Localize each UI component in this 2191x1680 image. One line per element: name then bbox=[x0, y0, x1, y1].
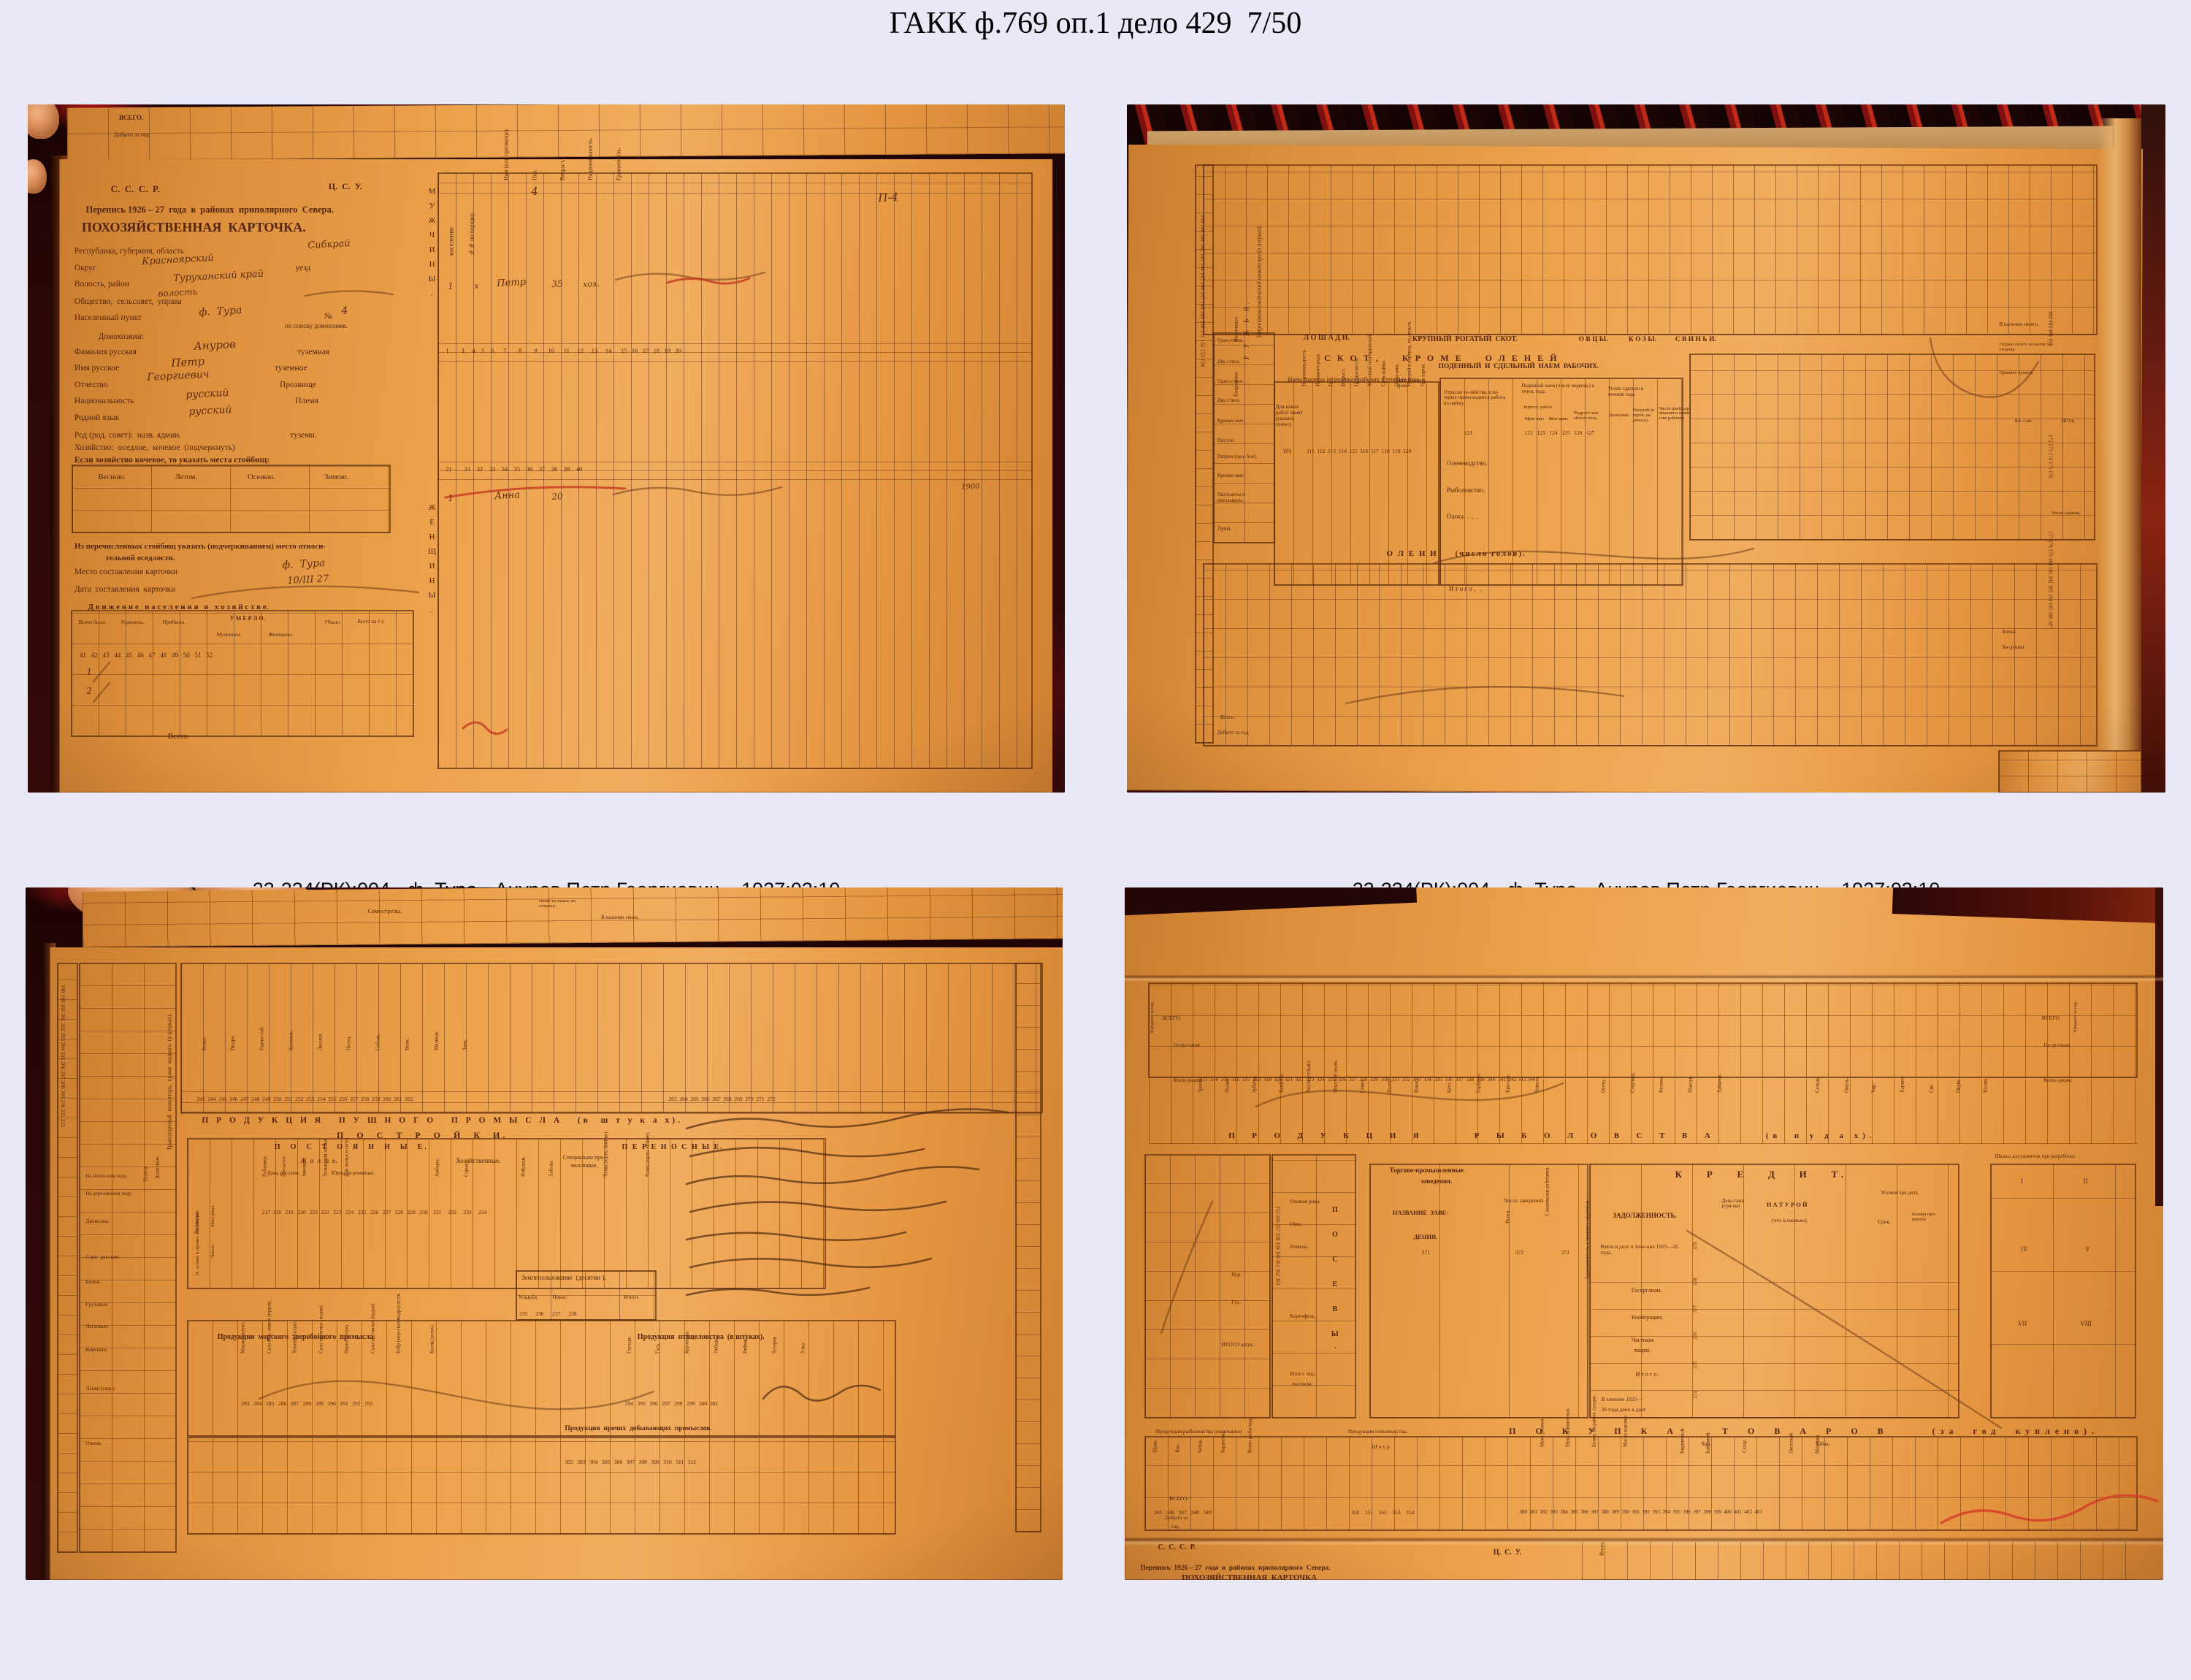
document-text: Р У Ж Ь Я. bbox=[1243, 299, 1250, 359]
document-text: Утка. bbox=[801, 1342, 806, 1353]
page-title: ГАКК ф.769 оп.1 дело 429 7/50 bbox=[0, 4, 2191, 42]
document-text: V bbox=[2085, 1246, 2090, 1253]
document-text: Тюлень (штук). bbox=[293, 1321, 298, 1353]
document-text: Картофель. bbox=[1290, 1313, 1316, 1319]
document-text: Н А Т У Р О Й bbox=[1767, 1202, 1808, 1208]
document-text: 10/III 27 bbox=[287, 574, 329, 587]
document-text: 139 140 141 142 143 144 145 146 147 148 … bbox=[1200, 215, 1206, 367]
document-text: год. bbox=[1171, 1524, 1179, 1530]
document-text: по списку домохозяев. bbox=[285, 323, 348, 330]
archive-contact-sheet: ГАКК ф.769 оп.1 дело 429 7/50 ВСЕГО.Добы… bbox=[0, 0, 2191, 1680]
document-text: 21 31 32 33 34 35 36 37 38 39 40 bbox=[446, 466, 582, 473]
document-text: Кооперации. bbox=[1632, 1315, 1663, 1321]
document-text: Акула (сельдь). bbox=[1307, 1060, 1312, 1093]
document-text: Георгиевич bbox=[147, 370, 210, 384]
document-text: Всего. bbox=[1220, 714, 1235, 720]
document-text: О В Ц Ы. bbox=[1579, 336, 1608, 343]
document-text: 373 bbox=[1561, 1250, 1569, 1256]
document-text: Тетерев. bbox=[772, 1336, 777, 1353]
document-text: Всего на 1 г. bbox=[358, 619, 399, 625]
document-text: Бобр (мор-ская выдра) штук. bbox=[397, 1292, 402, 1353]
document-text: Итого под bbox=[1290, 1371, 1315, 1377]
document-text: Сало мор. живое (пудов). bbox=[267, 1300, 272, 1353]
document-text: Телеги. bbox=[143, 1166, 149, 1182]
document-text: Рябчик. bbox=[743, 1337, 748, 1353]
document-text: Налим. bbox=[1225, 1077, 1231, 1093]
document-text: 177 178 179 180 181 182 183 184 185 186 … bbox=[2047, 531, 2053, 628]
document-text: Красноярский bbox=[142, 253, 214, 267]
document-text: Чир. bbox=[1871, 1083, 1876, 1092]
document-text: 372 bbox=[1515, 1250, 1523, 1256]
document-text: Сани русские. bbox=[85, 1254, 120, 1260]
document-text: туземная bbox=[297, 348, 329, 356]
document-text: Весною. bbox=[99, 473, 126, 481]
document-text: Куропатка. bbox=[685, 1330, 690, 1353]
document-text: Пистолеты и револьверы. bbox=[1217, 492, 1269, 503]
document-text: Легковые. bbox=[85, 1324, 109, 1329]
document-text: Национальность bbox=[74, 397, 134, 405]
document-text: Грамотность. bbox=[1354, 358, 1360, 387]
document-text: х bbox=[474, 282, 479, 291]
document-text: Л О Ш А Д И. bbox=[1304, 335, 1350, 343]
document-text: Керешки. bbox=[85, 1347, 107, 1353]
document-text: П Р О Д У К Ц И Я П У Ш Н О Г О П Р О М … bbox=[202, 1116, 683, 1125]
document-text: Чебак. bbox=[1198, 1439, 1204, 1453]
caption-photo-014: 23-234(РК):004 - ф. Тура - Ануров Петр Г… bbox=[26, 1622, 1063, 1680]
document-text: НАЗВАНИЕ ЗАВЕ- bbox=[1393, 1210, 1448, 1216]
document-text: На дере-вянном ходу. bbox=[85, 1191, 135, 1197]
document-text: 172 173 174 175 176 bbox=[2047, 435, 2053, 478]
document-text: Национальность. bbox=[588, 137, 594, 180]
document-text: своих на выпас на сторону. bbox=[539, 898, 591, 909]
document-text: Досчатые. bbox=[282, 1156, 287, 1177]
document-text: 243 244 245 246 247 248 249 250 251 252 … bbox=[196, 1096, 413, 1102]
document-text: Чумы (юрты зимние). bbox=[604, 1131, 609, 1177]
document-text: Из какого рода. bbox=[1315, 354, 1321, 387]
document-text: Моржи (штук). bbox=[241, 1321, 246, 1353]
document-text: ф. Тура bbox=[199, 305, 242, 318]
document-text: 379 bbox=[1694, 1242, 1699, 1250]
document-text: Род (род. совет): назв. админ. bbox=[74, 431, 181, 440]
document-text: Избушки. bbox=[521, 1156, 527, 1177]
document-text: 122 123 124 125 126 127 bbox=[1525, 430, 1595, 436]
document-text: Грузовые. bbox=[85, 1302, 109, 1307]
document-text: Рыболовство. bbox=[1447, 487, 1485, 495]
document-text: Рубленые. bbox=[263, 1156, 268, 1177]
document-text: ф. Тура bbox=[282, 558, 326, 571]
document-text: Всего было. bbox=[79, 619, 116, 625]
document-text: Жен-щин. bbox=[1548, 416, 1569, 421]
document-text: Перепись 1926 – 27 года в районах припол… bbox=[86, 205, 334, 215]
document-text: Сало тю-ленье (пудов). bbox=[319, 1305, 324, 1353]
document-text: Для каких работ нанят (указать точно). bbox=[1275, 404, 1309, 427]
document-text: Баранатка. bbox=[1221, 1430, 1226, 1453]
document-text: Мука пшенич-ная. bbox=[1566, 1408, 1571, 1447]
document-text: Отчество bbox=[74, 381, 108, 389]
document-text: Патронные. bbox=[1234, 371, 1239, 397]
document-text: 377 bbox=[1694, 1305, 1699, 1313]
document-text: 355 356 357 358 359 360 361 362 363 bbox=[1274, 1206, 1280, 1286]
document-text: Звероловно-охотничий инвентарь (в штуках… bbox=[1257, 225, 1263, 338]
document-text: Овес. bbox=[1290, 1221, 1303, 1227]
document-text: Взято в долг в тече-ние 1925—26 года. bbox=[1600, 1244, 1678, 1256]
document-text: Деньгами. bbox=[1609, 413, 1630, 418]
document-text: Махорка. bbox=[1815, 1435, 1820, 1454]
document-text-layer: ВСЕГО.Добыто за год.С. С. С. Р.Ц. С. У.П… bbox=[28, 104, 1065, 793]
document-text: Продукция прочих добывающих промыслов. bbox=[565, 1425, 711, 1432]
document-text: Для жилья и скота. bbox=[345, 1137, 350, 1177]
document-text: Самострелы. bbox=[368, 908, 402, 915]
document-text: С В И Н Ь И. bbox=[1675, 336, 1716, 343]
document-text: Налим. bbox=[1984, 1077, 1989, 1093]
document-text: 41 42 43 44 45 46 47 48 49 50 51 52 bbox=[80, 652, 213, 660]
document-text: I bbox=[2021, 1178, 2023, 1185]
document-text: П О К У П К А Т О В А Р О В (за год купл… bbox=[1509, 1427, 2099, 1436]
document-text: Всего. bbox=[168, 733, 190, 741]
document-text: 294 295 296 297 298 299 300 301 bbox=[625, 1401, 719, 1407]
document-text: Госорганам. bbox=[1632, 1288, 1662, 1294]
document-text: Колесные. bbox=[155, 1156, 161, 1178]
document-text: Оленеводство. bbox=[1447, 460, 1488, 467]
document-text: Шкалы для разметок при разработке. bbox=[1995, 1154, 2130, 1160]
document-text: Байховый. bbox=[1706, 1432, 1711, 1454]
document-text: Итого рыбы пуд. bbox=[1248, 1417, 1253, 1452]
document-text: Балки. bbox=[85, 1279, 101, 1285]
document-text: 4 bbox=[531, 186, 538, 198]
document-text: Родилось. bbox=[121, 619, 156, 625]
document-text: 263 264 265 266 267 268 269 270 271 272 bbox=[668, 1096, 775, 1102]
photo-gakk-769-1-429-013: ВСЕГО.Добыто за год.С. С. С. Р.Ц. С. У.П… bbox=[28, 104, 1065, 793]
document-text: Кремне-вые. bbox=[1217, 473, 1259, 479]
document-text: Хозяйство: оседлое, кочевое (подчеркнуть… bbox=[74, 443, 235, 452]
document-text: Специально про- bbox=[563, 1155, 605, 1161]
document-text: Нерпа (штук). bbox=[345, 1324, 350, 1353]
document-text-layer: Самострелы.своих на выпас на сторону.В н… bbox=[26, 887, 1063, 1580]
document-text: Число заведений. bbox=[1504, 1198, 1545, 1204]
document-text: Гус. bbox=[1231, 1299, 1241, 1305]
document-text: ДЕНИЯ. bbox=[1413, 1234, 1437, 1240]
document-text: Лабазы. bbox=[549, 1160, 554, 1177]
document-text: № bbox=[324, 312, 332, 321]
document-text: уезд bbox=[295, 264, 310, 272]
document-text: Котик (штук). bbox=[430, 1324, 435, 1353]
photo-gakk-769-1-429-013v: 139 140 141 142 143 144 145 146 147 148 … bbox=[1127, 104, 2165, 793]
document-text: Амбары. bbox=[435, 1158, 440, 1177]
document-text: 20 bbox=[551, 492, 563, 502]
document-text: Дву-ствол. bbox=[1217, 398, 1259, 404]
document-text: Красная. bbox=[1506, 1074, 1511, 1092]
document-text: Ц. С. У. bbox=[1494, 1549, 1521, 1557]
document-text: Харьюс. bbox=[1900, 1074, 1905, 1092]
document-text: Убыло. bbox=[324, 619, 341, 625]
document-text: население bbox=[448, 227, 455, 256]
document-text: Число дней хар-чевания в хозяй-стве рабо… bbox=[1659, 407, 1694, 421]
document-text: Ц. С. У. bbox=[329, 182, 362, 191]
document-text: Зимовья. bbox=[302, 1158, 307, 1177]
document-text: IV bbox=[2021, 1246, 2028, 1253]
document-text: Добыто за bbox=[1165, 1516, 1188, 1521]
document-text: Мука ржаная. bbox=[1540, 1418, 1545, 1447]
photo-gakk-769-1-429-014: Самострелы.своих на выпас на сторону.В н… bbox=[26, 887, 1063, 1580]
document-text: В течение 1925— bbox=[1602, 1397, 1643, 1402]
document-text: МУЖЧИНЫ. bbox=[427, 187, 436, 304]
document-text: Пол. bbox=[532, 169, 538, 180]
document-text: Продукция рыболовства (окончание) bbox=[1156, 1429, 1242, 1435]
document-text: Имя русское bbox=[74, 364, 119, 373]
document-text: Гусь. bbox=[656, 1343, 661, 1353]
document-text: С наемными рабочими. bbox=[1545, 1167, 1550, 1216]
document-text: 26 года дано в долг bbox=[1602, 1407, 1646, 1413]
document-text: 217 218 219 220 221 222 223 224 225 226 … bbox=[262, 1210, 487, 1215]
document-text: Усадьба bbox=[519, 1294, 538, 1300]
document-text: У М Е Р Л О. bbox=[230, 616, 265, 622]
document-text-layer: 139 140 141 142 143 144 145 146 147 148 … bbox=[1127, 104, 2165, 793]
document-text: Пистонные. bbox=[1234, 316, 1239, 342]
document-text: Из перечисленных стойбищ указать (подчер… bbox=[74, 543, 326, 551]
document-text: П О С Т Р О Й К И. bbox=[337, 1131, 508, 1140]
document-text: 1 bbox=[448, 494, 454, 503]
document-text: Стерлядь. bbox=[1630, 1072, 1635, 1093]
document-text: Н. летних и прочих стойбищах. bbox=[195, 1212, 200, 1275]
document-text: Покос. bbox=[552, 1294, 568, 1300]
document-text: Принято чужого. bbox=[1999, 370, 2051, 375]
document-text: Нельма. bbox=[1659, 1075, 1664, 1092]
document-text: №№ по порядку. bbox=[470, 213, 476, 256]
document-text: VII bbox=[2018, 1321, 2027, 1328]
document-text: Населенный пункт bbox=[74, 313, 142, 322]
document-text: Зубатка. bbox=[1253, 1075, 1258, 1093]
document-text: русский bbox=[188, 404, 232, 417]
document-text: Зимою. bbox=[324, 473, 348, 481]
document-text: Округ bbox=[74, 264, 96, 272]
document-text: Язь. bbox=[1175, 1444, 1180, 1453]
document-text: Общество, сельсовет, управа bbox=[74, 297, 182, 306]
document-text: Плата за весь срок. bbox=[1397, 378, 1434, 389]
document-text-layer: ВСЕГО.Госор-ганам.Коопе-рации.Продано за… bbox=[1125, 887, 2163, 1580]
document-text: Кремне-вые. bbox=[1217, 419, 1259, 424]
document-text: ВСЕГО. bbox=[119, 115, 143, 122]
document-text: 371 bbox=[1422, 1250, 1430, 1256]
document-text: Итого. bbox=[624, 1294, 639, 1300]
document-text: Племя bbox=[295, 397, 318, 405]
document-text: 1 3 4 5 6 7 8 9 10 11 12 13 14 15 16 17 … bbox=[446, 348, 681, 354]
document-text: К Р Е Д И Т. bbox=[1675, 1169, 1848, 1180]
document-text: ВСЕГО bbox=[2042, 1015, 2060, 1021]
document-text: Таймень. bbox=[1718, 1073, 1723, 1092]
document-text: Транспортный инвентарь, кроме водного (в… bbox=[167, 1013, 173, 1150]
document-text: Белка. bbox=[202, 1036, 207, 1050]
document-text: Торгово-промышленные bbox=[1390, 1167, 1464, 1175]
document-text: Сараи. bbox=[464, 1163, 469, 1177]
document-text: Лыжи (пар.). bbox=[85, 1386, 115, 1391]
caption-photo-014v: 23-234(РК):004 - ф. Тура - Ануров Петр Г… bbox=[1125, 1622, 2163, 1680]
document-text: Прибыло. bbox=[163, 619, 198, 625]
document-text: Продано за год. bbox=[1150, 1001, 1155, 1033]
document-text: 283 284 285 286 287 288 289 290 291 292 … bbox=[241, 1401, 372, 1407]
document-text: ВСЕГО. bbox=[1162, 1015, 1181, 1021]
document-text: Д в и ж е н и е н а с е л е н и я в х о … bbox=[88, 603, 268, 612]
document-text: Осетр. bbox=[1601, 1078, 1606, 1092]
document-text: Госор-ганам. bbox=[1174, 1043, 1207, 1048]
document-text: ЖЕНЩИНЫ. bbox=[427, 503, 436, 620]
document-text: Прозвище bbox=[280, 381, 316, 389]
document-text: Летом. bbox=[175, 473, 197, 481]
document-text: туземн. bbox=[290, 431, 317, 440]
document-text: Сахар. bbox=[1743, 1439, 1748, 1453]
document-text: Камбала. bbox=[1280, 1073, 1285, 1092]
document-text: 1 bbox=[448, 282, 454, 291]
document-text: Кирпичный. bbox=[1680, 1428, 1686, 1454]
document-text: мысловые. bbox=[571, 1163, 598, 1169]
document-text: Чавыча. bbox=[1534, 1075, 1540, 1092]
document-text: Ка-душки bbox=[2003, 645, 2034, 651]
document-text: Грамотность. bbox=[616, 147, 622, 180]
document-text: Треска. bbox=[1198, 1077, 1204, 1092]
document-text: Хозяйственные. bbox=[456, 1158, 500, 1165]
document-text: Возраст. bbox=[559, 159, 566, 180]
document-text: Добыто за год. bbox=[1217, 730, 1269, 736]
document-text: Максун. bbox=[1689, 1075, 1694, 1093]
document-text: Муж-чин. bbox=[1525, 416, 1545, 421]
document-text: Имя (или прозвище). bbox=[504, 128, 511, 180]
document-text: Соболь. bbox=[376, 1033, 382, 1050]
document-text: 162 163 164 165 bbox=[2047, 311, 2053, 345]
document-text: Семга. bbox=[1361, 1078, 1366, 1092]
document-text: Местный или пришлый. bbox=[1367, 334, 1373, 386]
document-text: Подрост-ков обоего пола. bbox=[1573, 411, 1605, 421]
document-text: Сиг. bbox=[1930, 1084, 1935, 1093]
document-text: Задолженность к моменту переписи. bbox=[1586, 1199, 1591, 1278]
document-text: Перепись 1926 – 27 года в районах припол… bbox=[1140, 1565, 1330, 1572]
document-text: хоз. bbox=[583, 280, 600, 289]
document-text: Анна bbox=[494, 491, 520, 503]
document-text: ПОХОЗЯЙСТВЕННАЯ КАРТОЧКА. bbox=[82, 221, 306, 234]
document-text: Возраст. bbox=[1342, 368, 1347, 386]
document-text: Итого. bbox=[1600, 1541, 1606, 1555]
document-text: Луки. bbox=[1217, 526, 1231, 532]
document-text: Озимая рожь bbox=[1290, 1199, 1320, 1204]
document-text: Морской окунь. bbox=[1334, 1059, 1339, 1093]
document-text: 235 236 237 238 bbox=[519, 1311, 577, 1317]
document-text: ИТОГО штук. bbox=[1221, 1342, 1254, 1348]
document-text: Мужчины. bbox=[216, 632, 241, 638]
document-text: Срок найма. bbox=[1381, 360, 1387, 387]
document-text: День-гами (сум-ма) bbox=[1722, 1199, 1751, 1210]
document-text: Сельдь. bbox=[1815, 1076, 1820, 1092]
document-text: Омуль. bbox=[1844, 1077, 1849, 1093]
document-text: Окунь. bbox=[1957, 1078, 1962, 1093]
photo-gakk-769-1-429-014v: ВСЕГО.Госор-ганам.Коопе-рации.Продано за… bbox=[1125, 887, 2163, 1580]
document-text: Взросл. рабоч. bbox=[1523, 405, 1553, 410]
document-text: С. С. С. Р. bbox=[1158, 1544, 1196, 1552]
document-text: Пол. bbox=[1329, 377, 1335, 387]
document-text: Продукция оленеводства. bbox=[1348, 1429, 1407, 1435]
document-text: Мате-риал. bbox=[210, 1204, 215, 1227]
document-text: О Л Е Н И (число голов). bbox=[1387, 550, 1526, 559]
document-text: Медведь. bbox=[434, 1030, 440, 1050]
document-text: Всего. bbox=[1505, 1210, 1511, 1223]
document-text: Натурой в перевод. на деньги. bbox=[1407, 321, 1413, 387]
document-text: Родной язык bbox=[74, 413, 119, 422]
document-text: 350 351 352 353 354 bbox=[1351, 1510, 1414, 1516]
document-text: Патрон (цен. бое). bbox=[1217, 454, 1264, 460]
document-text: Бочки bbox=[2003, 630, 2016, 635]
document-text: Масло коровье. bbox=[1623, 1414, 1628, 1447]
document-text: К О З Ы. bbox=[1629, 336, 1656, 343]
document-text: тельной оседлости. bbox=[106, 554, 175, 563]
document-text: Женщины. bbox=[268, 632, 293, 638]
document-text: Продано за год. bbox=[2073, 1001, 2078, 1033]
document-text: Срок. bbox=[1878, 1219, 1891, 1225]
document-text: 121 bbox=[1464, 430, 1472, 436]
document-text: 2 bbox=[86, 687, 92, 696]
document-text: Домохозяин: bbox=[99, 332, 145, 341]
document-text: Сало нер-пичье (пудов). bbox=[371, 1302, 376, 1353]
document-text: волость bbox=[158, 288, 197, 299]
document-text: Коопе-рации. bbox=[2043, 1078, 2077, 1083]
document-text: Лисица. bbox=[318, 1033, 324, 1050]
document-text: Ш к у р. bbox=[1372, 1444, 1391, 1450]
document-text: И т о г о . bbox=[1636, 1372, 1660, 1378]
document-text: Место составления карточки bbox=[74, 568, 177, 576]
document-text: 1900 bbox=[961, 484, 980, 492]
document-text: Горностай. bbox=[259, 1026, 265, 1050]
document-text: П Р О Д У К Ц И Я Р Ы Б О Л О В С Т В А … bbox=[1228, 1132, 1875, 1141]
document-text: Ячмень. bbox=[1290, 1244, 1309, 1250]
document-text: туземное bbox=[275, 364, 307, 373]
document-text: Число. bbox=[210, 1244, 215, 1258]
document-text: Госор-ганам. bbox=[2043, 1043, 2077, 1048]
document-text: Частным bbox=[1632, 1337, 1654, 1344]
caption-line1: 23-234(РК):004 - ф. Тура - Ануров Петр Г… bbox=[26, 1676, 1063, 1680]
document-text: Отрасли хо-зяйства, в ко-торых произ-вод… bbox=[1444, 390, 1511, 407]
document-text: Выдра. bbox=[231, 1034, 237, 1050]
document-text: Сибкрай bbox=[307, 239, 351, 251]
document-text: 302 303 304 305 306 307 308 309 310 311 … bbox=[565, 1459, 696, 1465]
document-text: Национальность. bbox=[1302, 349, 1308, 386]
document-text: Землепользование (десятин ). bbox=[521, 1275, 606, 1282]
document-text: ПОХОЗЯЙСТВЕННАЯ КАРТОЧКА bbox=[1182, 1574, 1317, 1580]
document-text: Только для жилья. bbox=[323, 1138, 328, 1177]
document-text: В наличии своих. bbox=[601, 915, 653, 921]
document-text: 198 199 200 201 202 203 204 205 206 207 … bbox=[60, 985, 66, 1127]
document-text: Осенью. bbox=[248, 473, 275, 481]
document-text: Юрты де-ревянные. bbox=[332, 1171, 378, 1177]
document-text: П-4 bbox=[878, 191, 899, 204]
document-text: Если хозяйство кочевое, то указать места… bbox=[74, 456, 269, 465]
document-text: Петр bbox=[171, 355, 205, 369]
document-text: Булки, ба-ранки, сухари. bbox=[1592, 1395, 1597, 1447]
document-text: ПОДЕННЫЙ И СДЕЛЬНЫЙ НАЕМ РАБОЧИХ. bbox=[1439, 363, 1599, 370]
document-text: 375 bbox=[1694, 1361, 1699, 1369]
caption-line1: 23-234(РК):004 - ф. Тура - Ануров Петр Г… bbox=[1125, 1676, 2163, 1680]
document-text: 35 bbox=[551, 279, 563, 289]
document-text: Колонок. bbox=[288, 1031, 294, 1050]
document-text: 374 bbox=[1694, 1391, 1699, 1399]
document-text: Олени. bbox=[85, 1440, 102, 1446]
document-text: заведения. bbox=[1420, 1178, 1452, 1185]
document-text: 101 bbox=[1282, 448, 1291, 455]
document-text: русский bbox=[186, 388, 229, 401]
document-text: II bbox=[2084, 1178, 2088, 1185]
document-text: ВСЕГО. bbox=[1169, 1496, 1188, 1502]
document-text: Дата составления карточки bbox=[74, 585, 176, 594]
document-text: КРУПНЫЙ РОГАТЫЙ СКОТ. bbox=[1412, 336, 1518, 344]
document-text: ЗАДОЛЖЕННОСТЬ. bbox=[1613, 1213, 1676, 1220]
document-text: С. С. С. Р. bbox=[111, 184, 160, 194]
document-text: Условия кре-дита. bbox=[1881, 1191, 1922, 1196]
document-text: 111 112 113 114 115 116 117 118 119 120 bbox=[1307, 448, 1411, 454]
